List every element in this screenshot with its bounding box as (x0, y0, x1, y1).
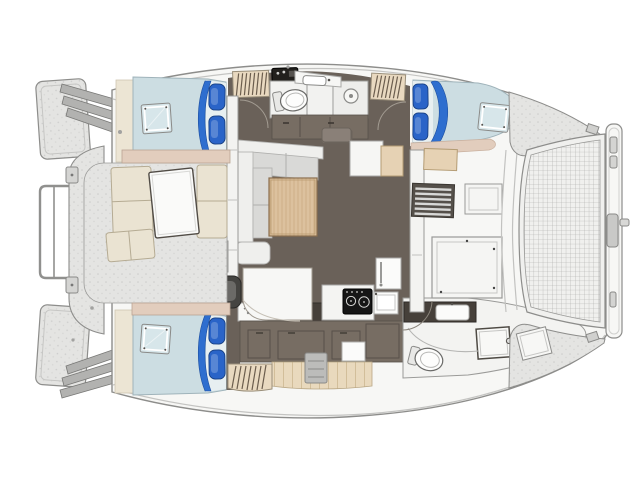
companionway-box (305, 353, 327, 383)
large-deck-hatch (432, 237, 502, 298)
curved-steps (228, 364, 272, 391)
catamaran-floorplan (0, 0, 640, 479)
cockpit-back-port (122, 150, 230, 163)
cockpit-back-starboard (132, 303, 230, 315)
anchor-pin (620, 219, 629, 226)
shower-stall (476, 327, 513, 359)
cabinet-run (272, 115, 368, 143)
wood-cabinet (381, 146, 403, 176)
floorplan-canvas (0, 0, 640, 479)
galley-upper-cabinets (350, 141, 403, 176)
vanity-sink (436, 305, 469, 320)
bench-forward (106, 229, 155, 262)
beam-fitting-top (610, 137, 617, 153)
aft-cockpit (84, 150, 230, 315)
refrigerator (376, 258, 401, 289)
nav-desk (243, 268, 312, 320)
deck-hatch (140, 324, 171, 354)
aft-cabin-starboard (115, 310, 226, 395)
dining-table (269, 178, 317, 236)
wardrobe-louver-aft (233, 70, 270, 97)
galley-sink-module (374, 292, 398, 314)
cockpit-table (149, 168, 200, 238)
bench-port (111, 166, 153, 235)
small-deck-hatch (465, 184, 502, 214)
stove-cooktop (343, 289, 372, 314)
shower-drain (344, 89, 358, 103)
side-bench (322, 128, 351, 142)
bench-starboard (197, 165, 227, 238)
trampoline-net (519, 134, 605, 328)
aft-bulkhead-door (227, 96, 238, 302)
wood-module (424, 148, 458, 170)
deck-hatch (141, 103, 172, 134)
louver-vent (411, 183, 454, 217)
davit-frame (40, 186, 69, 278)
wardrobe-louver-forward (370, 73, 405, 101)
aft-cabin-port (116, 77, 226, 162)
deck-hatch (478, 103, 511, 133)
cabin-wall-cream (115, 310, 133, 393)
forward-bulkhead-door (410, 150, 424, 312)
sofa-back-left (238, 152, 253, 242)
appliance (342, 342, 365, 361)
crossbeam-latch (607, 214, 618, 247)
sofa-armrest (236, 242, 270, 264)
